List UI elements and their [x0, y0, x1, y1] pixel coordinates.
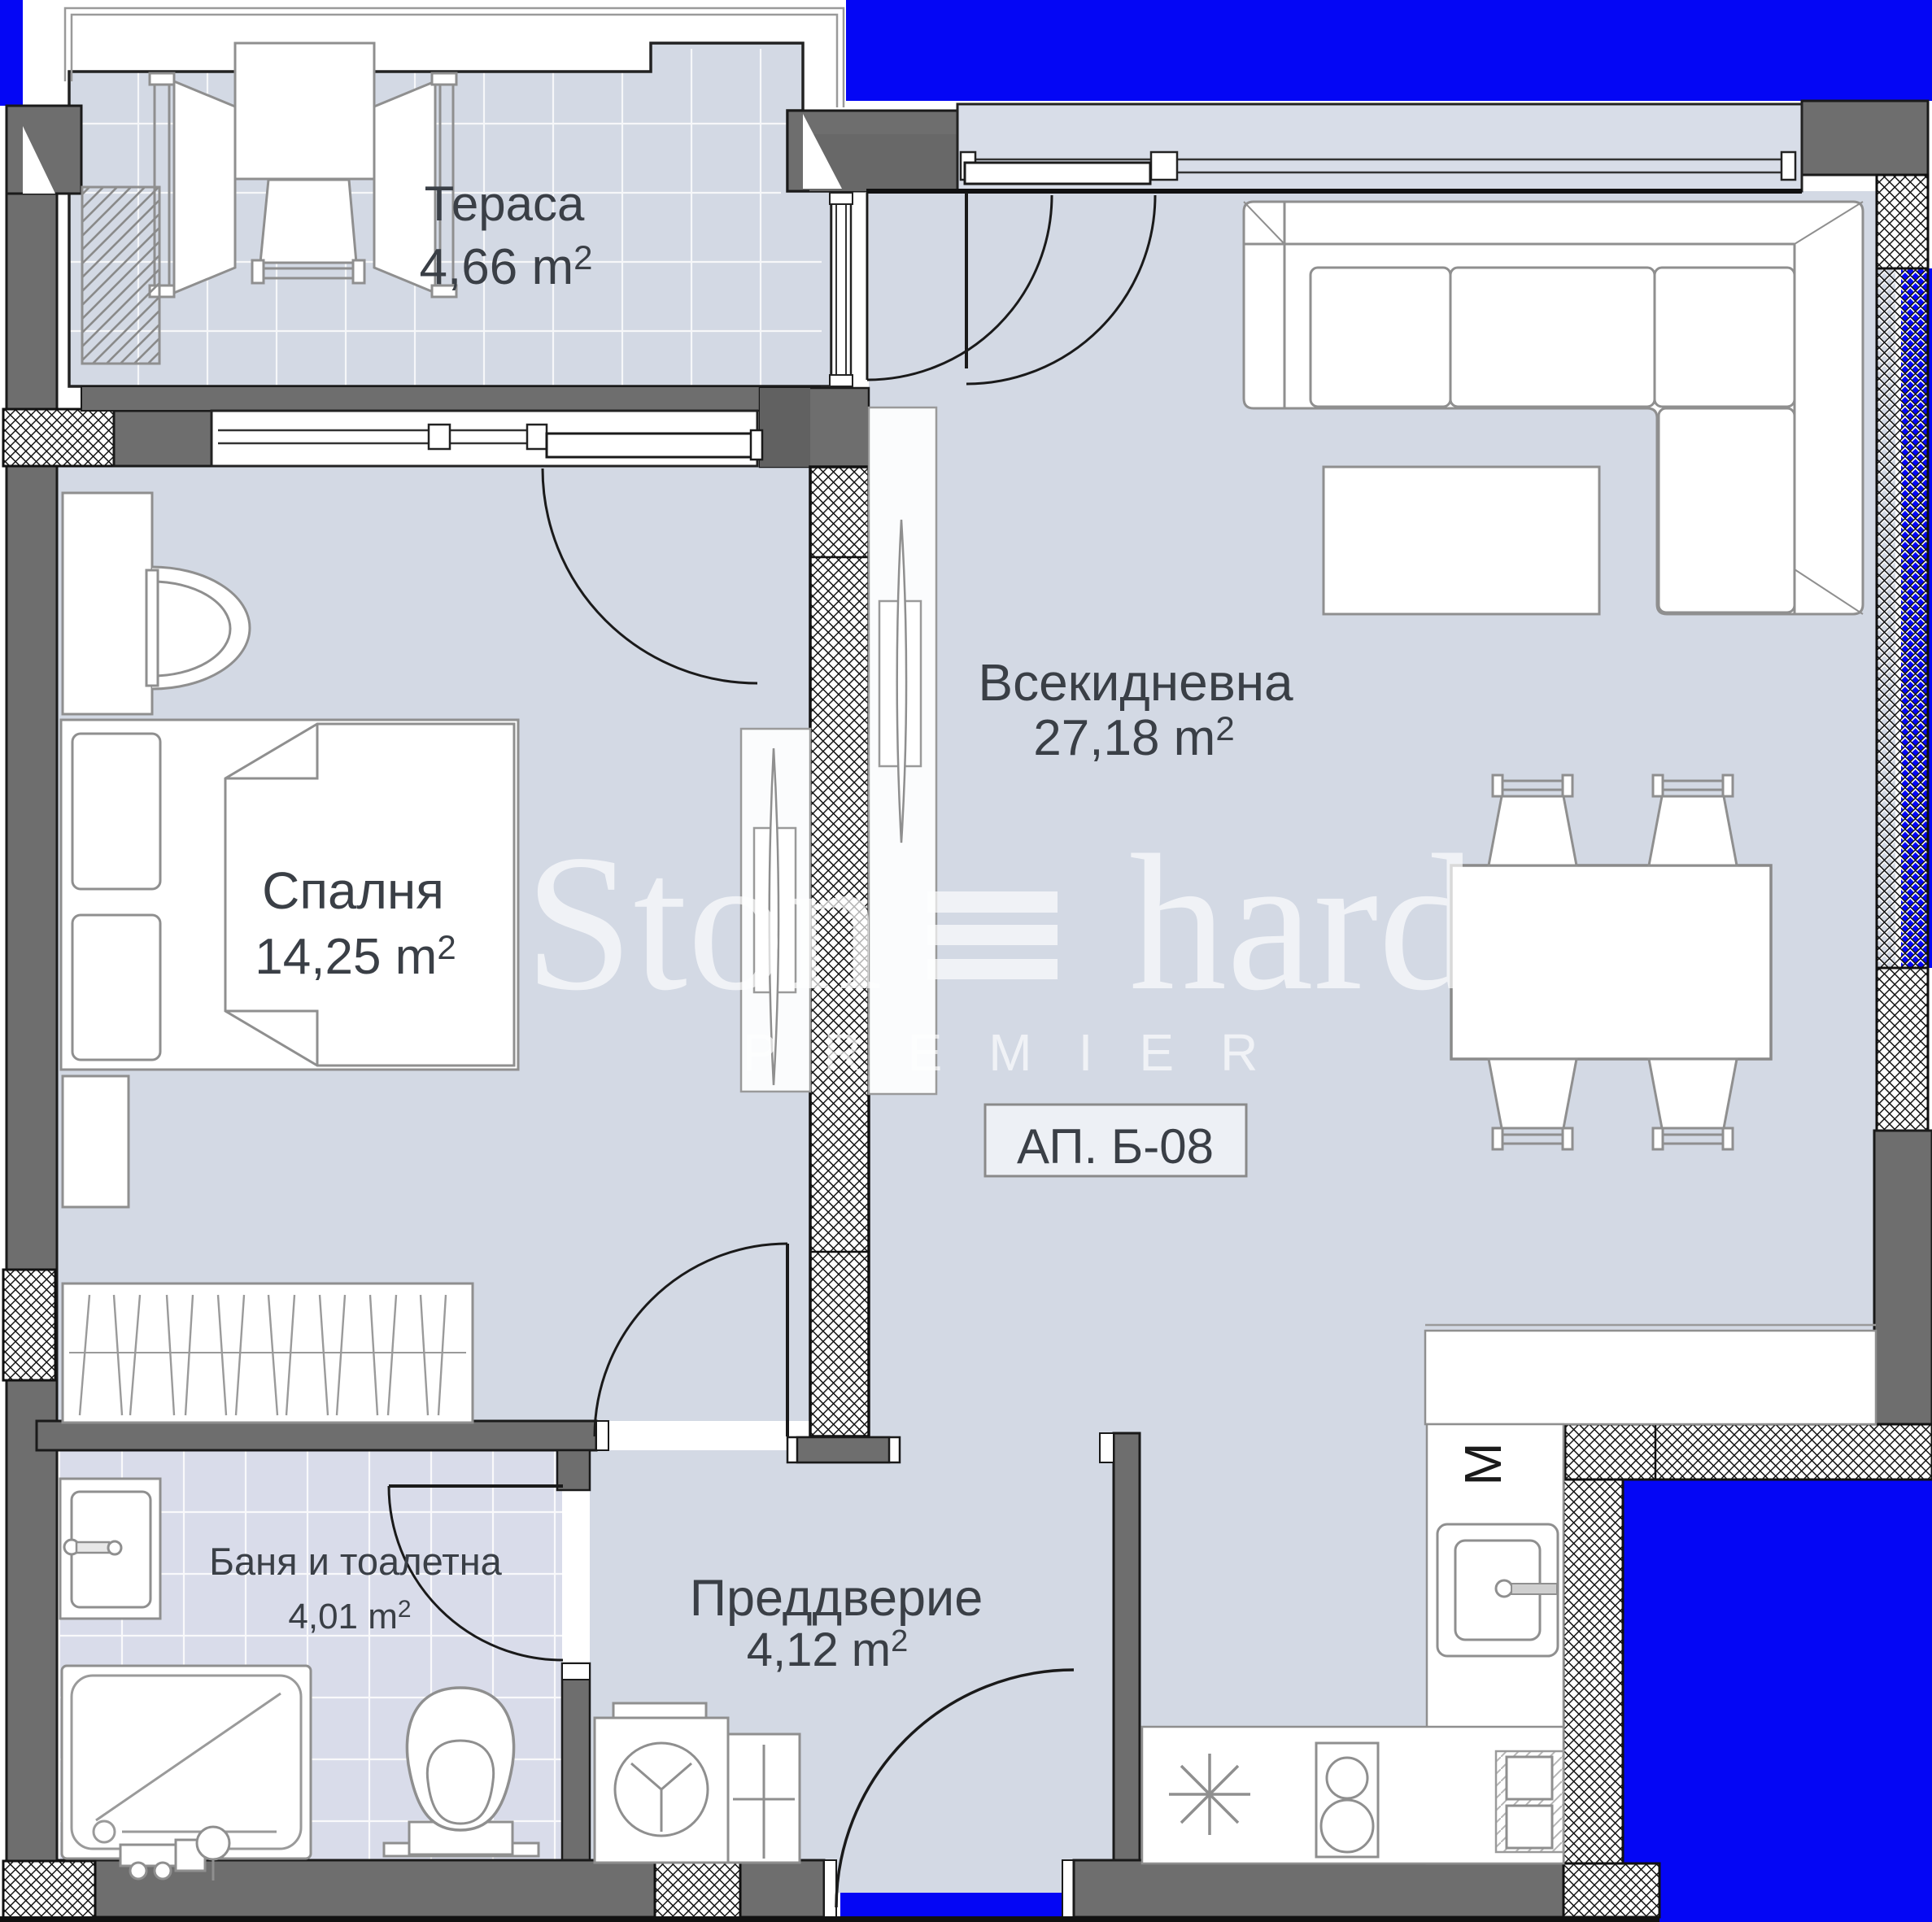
svg-text:4,01 m2: 4,01 m2	[288, 1596, 411, 1637]
svg-text:Спалня: Спалня	[262, 861, 444, 920]
svg-text:Преддверие: Преддверие	[690, 1570, 983, 1627]
svg-text:М: М	[1454, 1442, 1512, 1485]
svg-text:4,66 m2: 4,66 m2	[420, 238, 593, 295]
svg-text:Ston: Ston	[525, 814, 883, 1031]
svg-text:hard: hard	[1129, 814, 1476, 1031]
svg-text:14,25 m2: 14,25 m2	[255, 928, 456, 985]
svg-text:Всекидневна: Всекидневна	[978, 653, 1293, 712]
svg-text:АП. Б-08: АП. Б-08	[1017, 1119, 1214, 1174]
svg-text:Тераса: Тераса	[425, 177, 585, 231]
svg-text:Баня и тоалетна: Баня и тоалетна	[209, 1540, 503, 1583]
svg-text:27,18 m2: 27,18 m2	[1033, 709, 1234, 766]
svg-text:4,12 m2: 4,12 m2	[747, 1623, 908, 1676]
svg-text:PREMIER: PREMIER	[743, 1023, 1305, 1082]
